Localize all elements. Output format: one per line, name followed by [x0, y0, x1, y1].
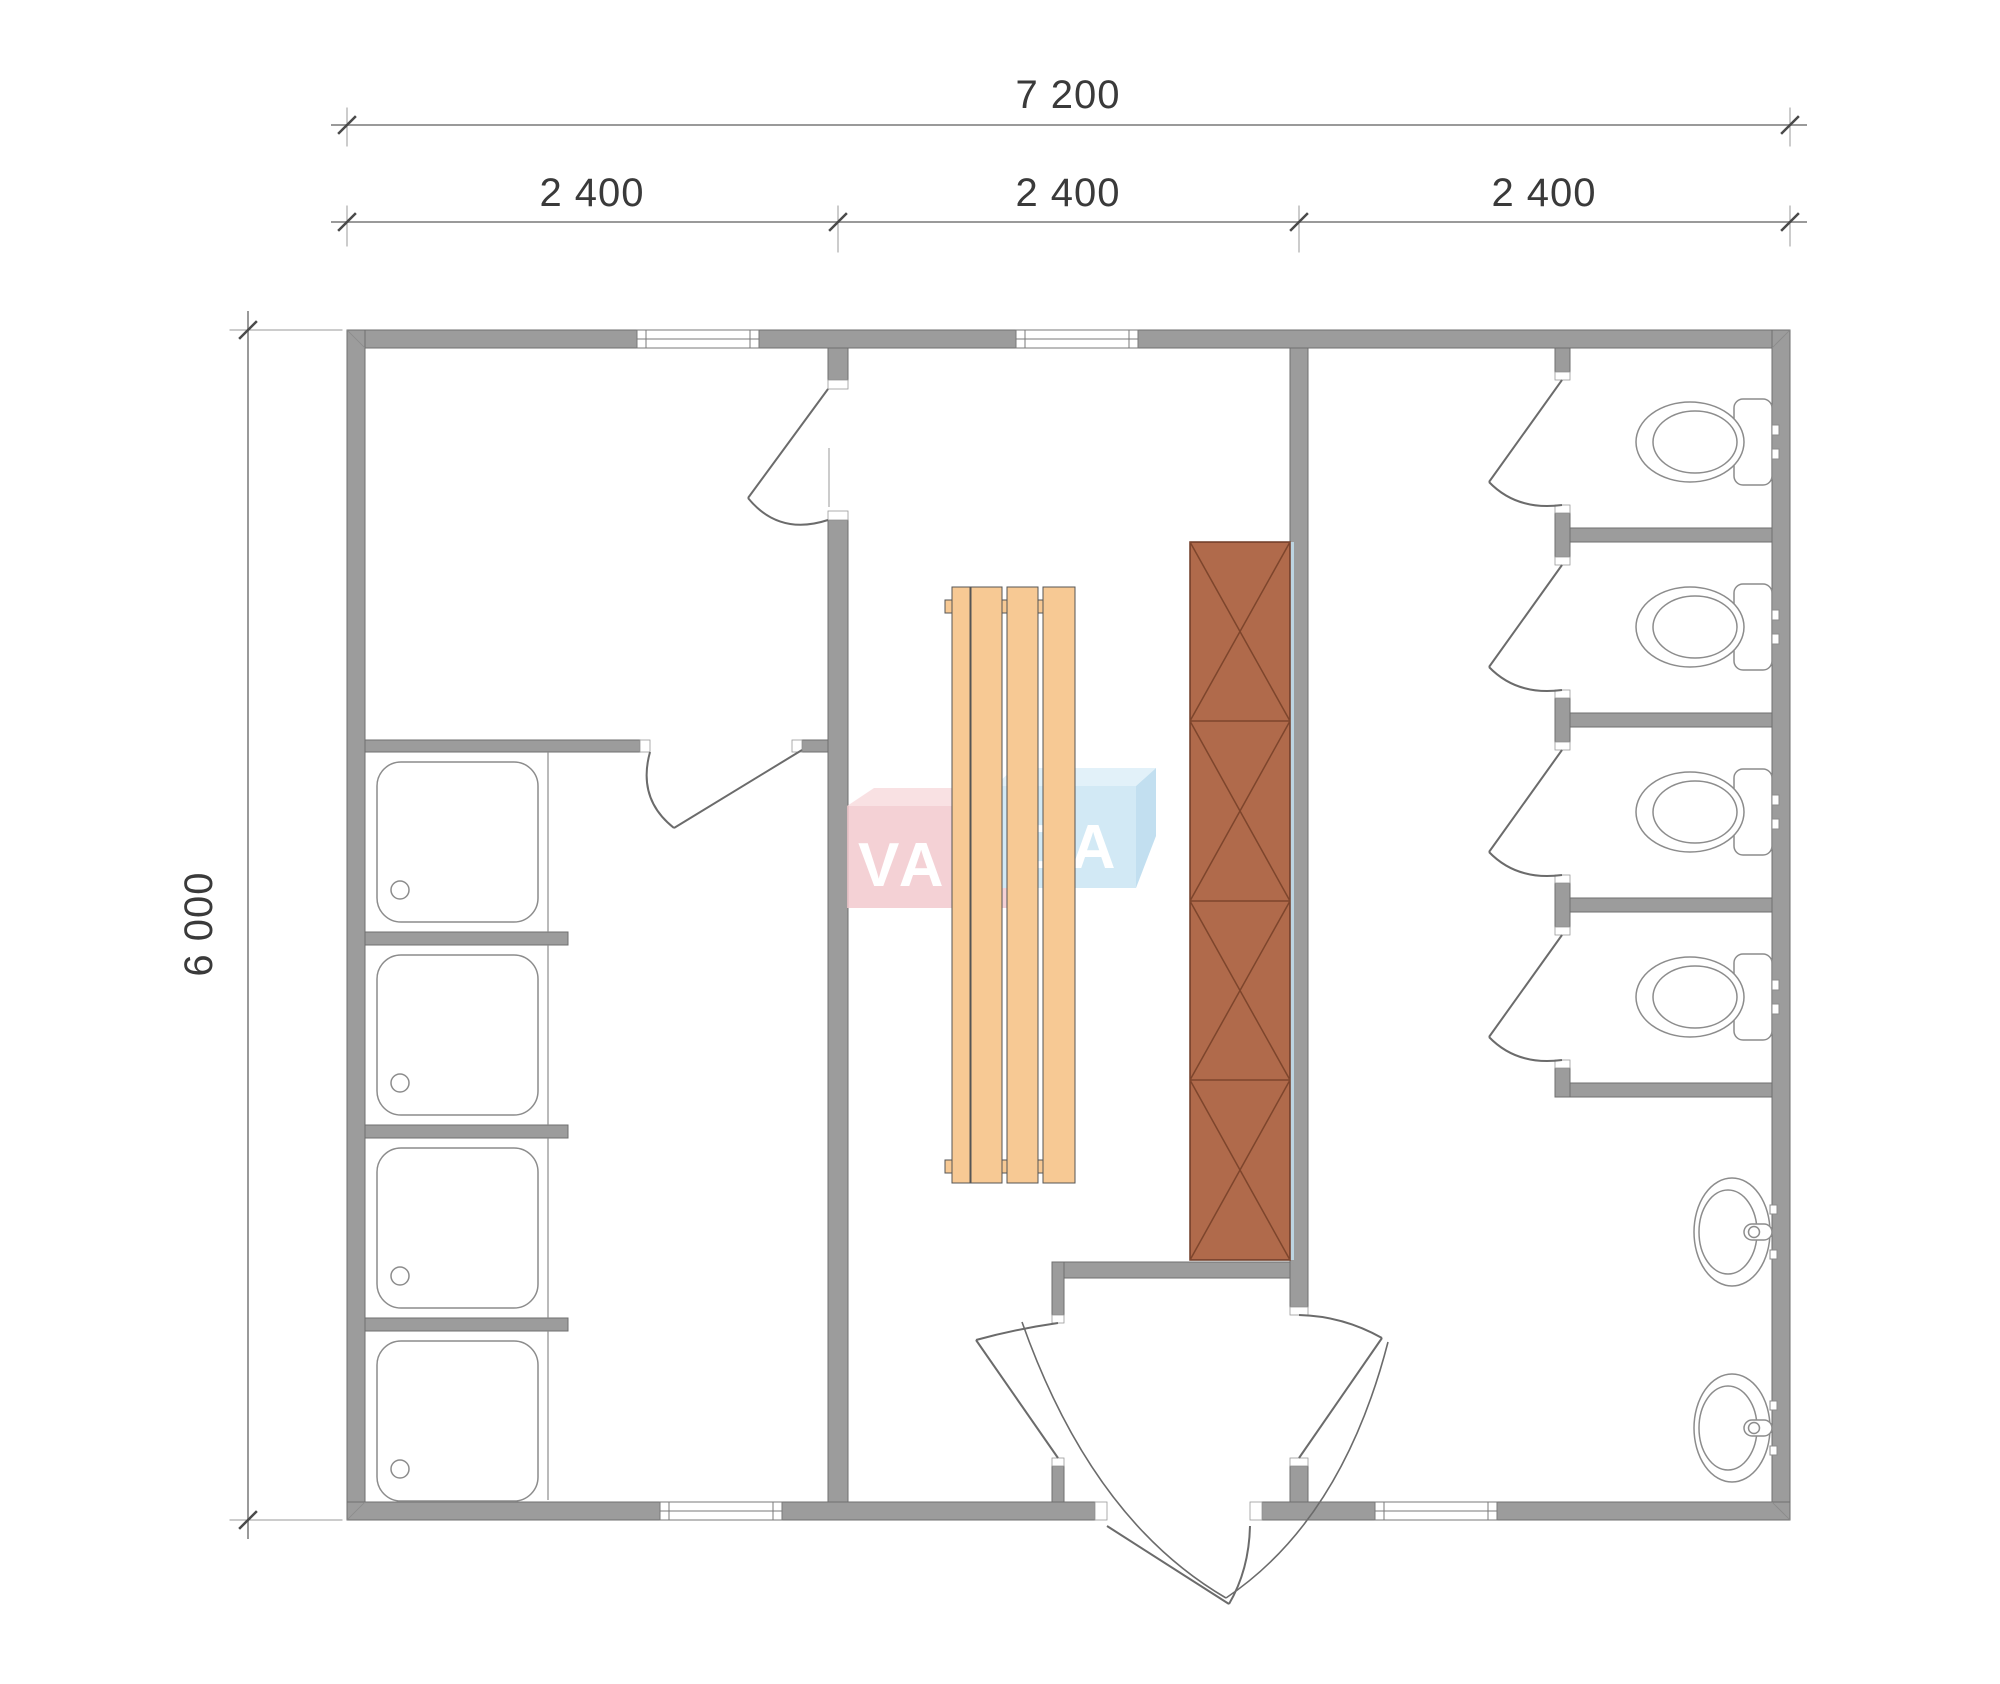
sauna-benches — [945, 587, 1075, 1183]
entrance-door — [1022, 1322, 1388, 1604]
door-left-room — [748, 389, 829, 525]
wall-vestibule-left-stub — [1052, 1466, 1064, 1502]
bench-plank — [952, 587, 970, 1183]
stall-door — [1489, 750, 1562, 876]
door-leaf — [1107, 1526, 1229, 1604]
window-top-middle — [1016, 330, 1138, 348]
stall-partition — [1557, 528, 1772, 542]
washbasins — [1694, 1178, 1777, 1482]
wall-exterior-bottom-right — [1262, 1502, 1790, 1520]
floor-plan-drawing: 7 200 2 400 2 400 2 400 6 000 — [0, 0, 2000, 1684]
dimension-label-module-3: 2 400 — [1491, 171, 1596, 215]
window-bottom-right — [1375, 1502, 1497, 1520]
door-jamb — [828, 380, 848, 389]
stall-door — [1489, 380, 1562, 506]
dimension-label-module-2: 2 400 — [1015, 171, 1120, 215]
wall-interior-2-stub — [1290, 1466, 1308, 1502]
door-leaf — [674, 750, 802, 828]
washbasin — [1694, 1374, 1777, 1482]
wall-shower-partition — [802, 740, 828, 752]
logo-blue-side-face — [1136, 768, 1156, 888]
shower-divider — [365, 1125, 568, 1138]
wall-shower-partition — [365, 740, 640, 752]
wall-exterior-left — [347, 330, 365, 1520]
door-shower-room — [647, 750, 802, 828]
dimension-label-module-1: 2 400 — [539, 171, 644, 215]
shower-divider — [365, 1318, 568, 1331]
shower-cabin — [377, 762, 538, 922]
stall-front-stub — [1555, 1068, 1570, 1097]
door-vestibule-to-middle-room — [976, 1323, 1058, 1458]
dimension-label-total-height: 6 000 — [177, 871, 221, 976]
dimension-top-modules: 2 400 2 400 2 400 — [332, 171, 1806, 252]
wall-vestibule-top — [1052, 1262, 1290, 1278]
window-top-left — [637, 330, 759, 348]
door-swing-arc — [1299, 1315, 1382, 1338]
dimension-label-total-width: 7 200 — [1015, 73, 1120, 117]
shower-cabin — [377, 1148, 538, 1308]
door-jambs — [640, 372, 1570, 1520]
door-jamb — [1250, 1502, 1262, 1520]
door-swing-arc — [976, 1323, 1058, 1340]
dimension-left-height: 6 000 — [177, 312, 342, 1538]
toilet — [1636, 584, 1779, 670]
door-jamb — [1555, 742, 1570, 750]
bench-plank — [1043, 587, 1075, 1183]
door-jamb — [1052, 1458, 1064, 1466]
door-leaf — [976, 1340, 1058, 1458]
doors — [647, 380, 1562, 1604]
bench-plank — [1007, 587, 1038, 1183]
stall-door — [1489, 565, 1562, 691]
wall-interior-1-stub — [828, 348, 848, 380]
door-jamb — [828, 511, 848, 520]
window-bottom-left — [660, 1502, 782, 1520]
door-jamb — [1555, 372, 1570, 380]
door-jamb — [1290, 1307, 1308, 1315]
door-jamb — [1290, 1458, 1308, 1466]
shower-divider — [365, 932, 568, 945]
toilet — [1636, 399, 1779, 485]
toilet — [1636, 769, 1779, 855]
door-swing-arc — [647, 752, 674, 828]
stall-partition — [1557, 713, 1772, 727]
wall-vestibule-left-stub — [1052, 1262, 1064, 1315]
stall-front-stub — [1555, 348, 1570, 372]
door-swing-arc — [748, 498, 828, 525]
door-jamb — [1555, 557, 1570, 565]
shower-cabin — [377, 1341, 538, 1501]
toilet-stall-doors — [1489, 380, 1562, 1061]
door-swing-arc — [1229, 1526, 1250, 1604]
stall-partition — [1557, 898, 1772, 912]
wall-interior-1 — [828, 520, 848, 1502]
door-jamb — [1555, 927, 1570, 935]
wall-exterior-right — [1772, 330, 1790, 1520]
toilet — [1636, 954, 1779, 1040]
stall-partition — [1557, 1083, 1772, 1097]
door-vestibule-to-right-room — [1299, 1315, 1382, 1458]
door-jamb — [1095, 1502, 1107, 1520]
door-jamb — [1052, 1315, 1064, 1323]
washbasin — [1694, 1178, 1777, 1286]
dimension-top-total: 7 200 — [332, 73, 1806, 146]
stall-front-stub — [1555, 513, 1570, 557]
stall-door — [1489, 935, 1562, 1061]
door-leaf — [748, 389, 828, 498]
door-leaf — [1299, 1338, 1382, 1458]
stall-front-stub — [1555, 698, 1570, 742]
bench-plank — [971, 587, 1002, 1183]
sauna-heater — [1190, 542, 1294, 1260]
floor-plan-canvas: 7 200 2 400 2 400 2 400 6 000 — [0, 0, 2000, 1684]
stall-front-stub — [1555, 883, 1570, 927]
door-jamb — [640, 740, 650, 752]
shower-cabin — [377, 955, 538, 1115]
